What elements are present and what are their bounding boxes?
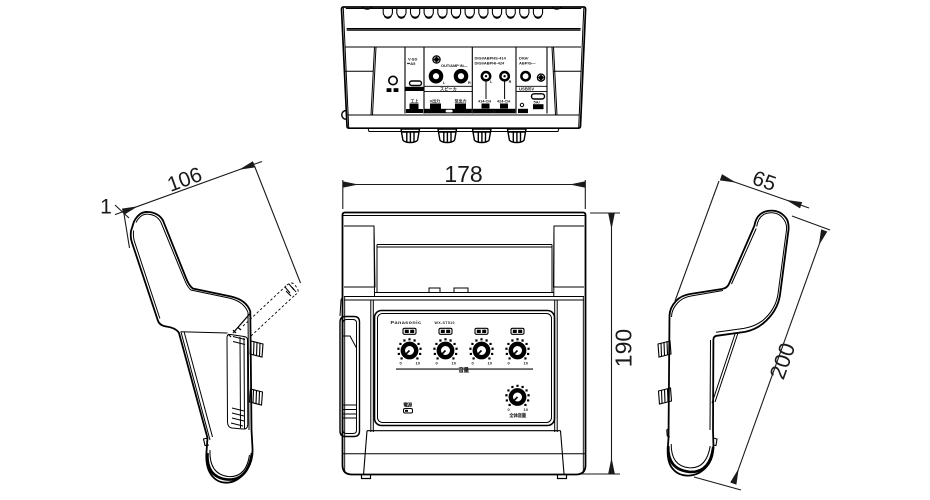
svg-text:DIGI/ABPHI-424: DIGI/ABPHI-424 [475,61,506,66]
svg-text:190: 190 [611,329,637,367]
svg-text:R: R [468,81,471,85]
svg-text:200: 200 [765,340,801,383]
svg-text:10: 10 [488,361,493,366]
svg-text:USB/5V: USB/5V [519,87,534,92]
svg-text:424-CH: 424-CH [497,100,510,104]
svg-text:178: 178 [444,161,482,187]
svg-text:0: 0 [400,361,403,366]
svg-text:65: 65 [749,167,779,196]
svg-text:414-CH: 414-CH [478,100,491,104]
svg-text:電源: 電源 [403,402,412,409]
svg-text:0: 0 [508,407,511,412]
svg-text:1: 1 [100,196,112,219]
svg-text:L: L [443,81,446,85]
svg-text:スピーカ: スピーカ [440,86,457,93]
svg-text:0: 0 [436,361,439,366]
svg-text:R: R [509,80,512,84]
svg-text:音量: 音量 [458,366,469,374]
svg-text:全体音量: 全体音量 [508,412,526,419]
svg-text:10: 10 [524,361,529,366]
svg-text:10: 10 [524,407,529,412]
svg-text:L: L [490,80,493,84]
svg-text:工上: 工上 [411,98,419,104]
svg-text:至出力: 至出力 [455,98,467,104]
svg-text:ABPIG—: ABPIG— [519,61,536,66]
svg-text:⎓A5: ⎓A5 [407,61,416,66]
svg-text:10: 10 [416,361,421,366]
svg-text:106: 106 [164,163,205,197]
svg-text:5A/: 5A/ [534,100,541,105]
svg-text:WX-ST510: WX-ST510 [435,321,455,325]
svg-text:10: 10 [452,361,457,366]
svg-text:OUT/AMP IN—: OUT/AMP IN— [441,63,467,68]
svg-text:0: 0 [472,361,475,366]
svg-text:Panasonic: Panasonic [391,320,422,325]
svg-text:0: 0 [508,361,511,366]
svg-text:X出力: X出力 [430,98,441,104]
svg-text:CH: CH [490,109,496,114]
